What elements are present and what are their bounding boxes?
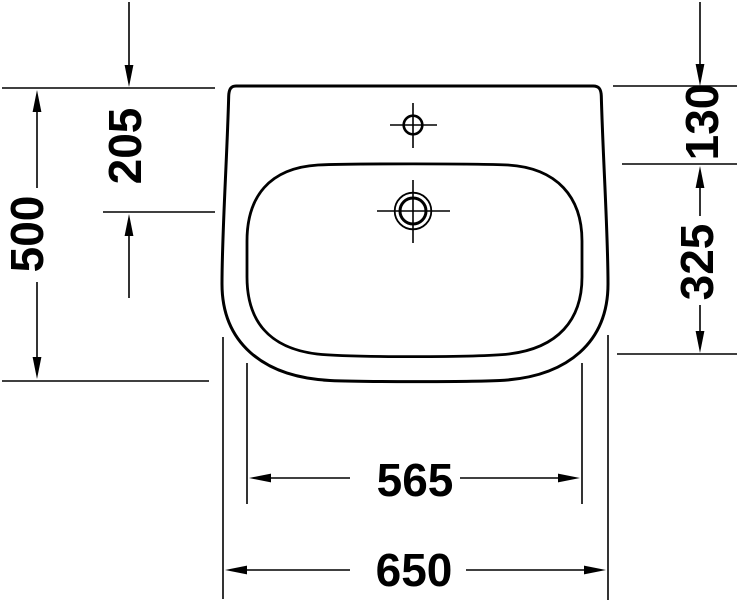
dimension-label-bowl-rim-offset: 130	[676, 84, 728, 161]
washbasin-technical-drawing: 500 205 130 325 565 650	[0, 0, 738, 605]
arrowhead-565-left	[249, 474, 271, 483]
drawing-svg: 500 205 130 325 565 650	[0, 0, 738, 605]
dimension-label-bowl-depth: 325	[671, 224, 723, 301]
arrowhead-565-right	[558, 474, 580, 483]
arrowhead-130-top-down	[696, 64, 705, 86]
arrowhead-205-top-down	[125, 65, 134, 87]
arrowhead-500-bottom-down	[33, 357, 42, 379]
dimension-label-drain-offset: 205	[99, 108, 151, 185]
dimension-label-depth-overall: 500	[1, 196, 53, 273]
basin-outer-outline	[222, 86, 608, 382]
arrowhead-650-right	[584, 566, 606, 575]
arrowhead-650-left	[225, 566, 247, 575]
dimension-label-bowl-width: 565	[377, 454, 454, 506]
arrowhead-500-top-up	[33, 90, 42, 112]
arrowhead-325-bottom-down	[696, 331, 705, 353]
dimension-label-width-overall: 650	[376, 544, 453, 596]
arrowhead-325-top-up	[696, 166, 705, 188]
arrowhead-205-bottom-up	[125, 214, 134, 236]
